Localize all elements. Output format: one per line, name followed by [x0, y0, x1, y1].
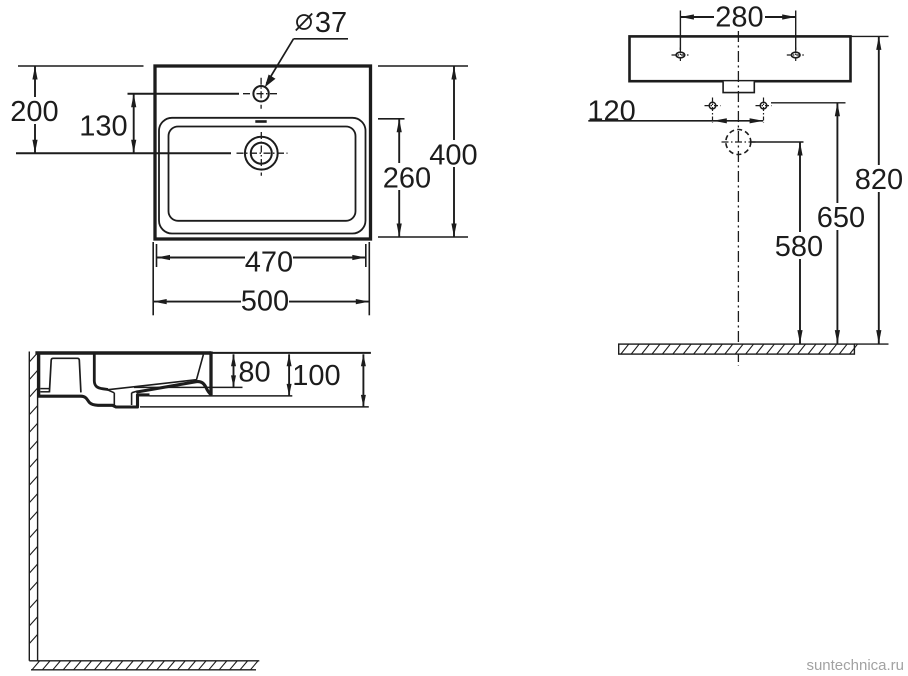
svg-text:200: 200 — [10, 96, 58, 128]
svg-text:100: 100 — [292, 360, 340, 392]
svg-text:260: 260 — [383, 162, 431, 194]
svg-text:500: 500 — [241, 286, 289, 318]
svg-text:470: 470 — [245, 246, 293, 278]
svg-text:820: 820 — [855, 164, 903, 196]
svg-text:130: 130 — [79, 110, 127, 142]
svg-text:280: 280 — [715, 1, 763, 33]
svg-text:580: 580 — [775, 231, 823, 263]
svg-text:120: 120 — [587, 95, 635, 127]
svg-text:650: 650 — [817, 202, 865, 234]
svg-text:80: 80 — [238, 356, 270, 388]
svg-text:37: 37 — [315, 7, 347, 39]
svg-text:400: 400 — [429, 139, 477, 171]
svg-text:suntechnica.ru: suntechnica.ru — [806, 657, 904, 674]
